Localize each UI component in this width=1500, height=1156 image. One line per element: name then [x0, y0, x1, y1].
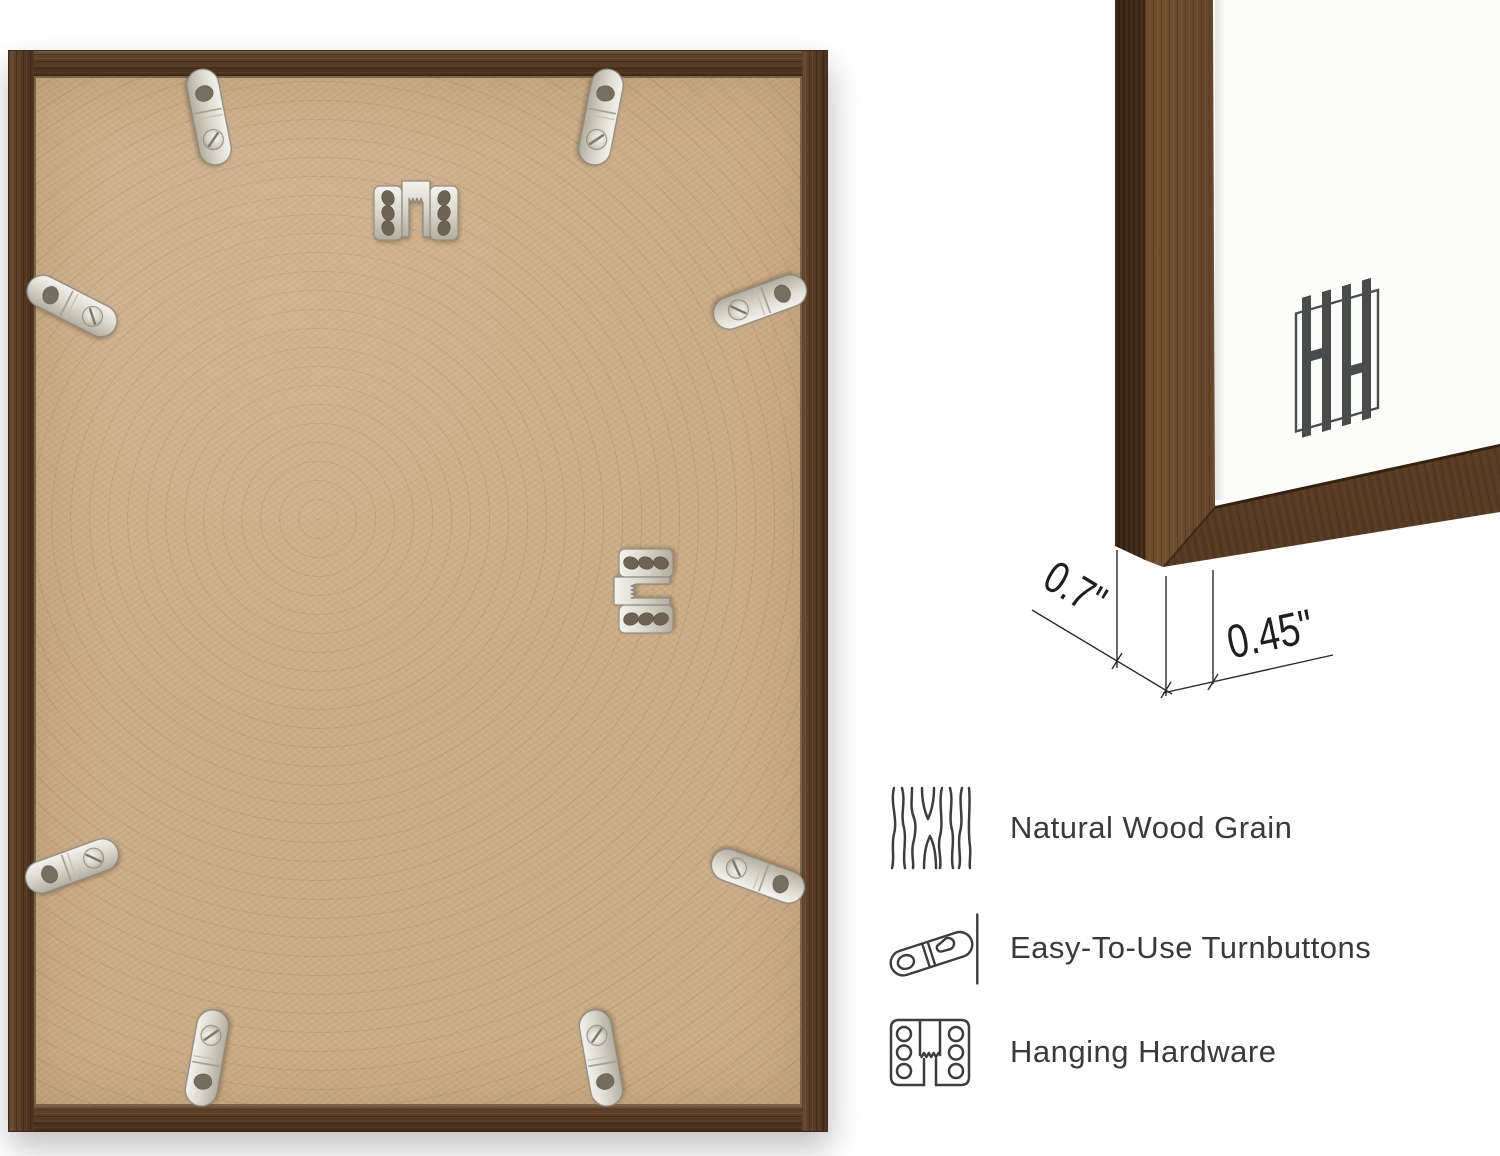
- feature-row-hanging-hardware: Hanging Hardware: [888, 1006, 1500, 1098]
- product-image: 0.7" 0.45" Natural Wood Grain: [0, 0, 1500, 1156]
- feature-row-wood-grain: Natural Wood Grain: [888, 782, 1500, 874]
- feature-row-turnbuttons: Easy-To-Use Turnbuttons: [888, 902, 1500, 994]
- wood-grain-icon: [888, 786, 984, 870]
- turnbutton-icon: [888, 905, 984, 991]
- sawtooth-hanger-top: [372, 178, 460, 246]
- feature-label: Easy-To-Use Turnbuttons: [1010, 930, 1371, 966]
- sawtooth-hanger-middle: [611, 547, 679, 635]
- feature-label: Natural Wood Grain: [1010, 810, 1292, 846]
- matte-edge-shadow: [1215, 0, 1225, 500]
- wood-rail-top: [9, 51, 827, 76]
- hanging-hardware-icon: [888, 1010, 984, 1094]
- wood-rail-right: [802, 51, 827, 1131]
- wood-rail-left: [9, 51, 34, 1131]
- feature-label: Hanging Hardware: [1010, 1034, 1276, 1070]
- wood-rail-bottom: [9, 1106, 827, 1131]
- brand-logo-hh: [1288, 262, 1388, 438]
